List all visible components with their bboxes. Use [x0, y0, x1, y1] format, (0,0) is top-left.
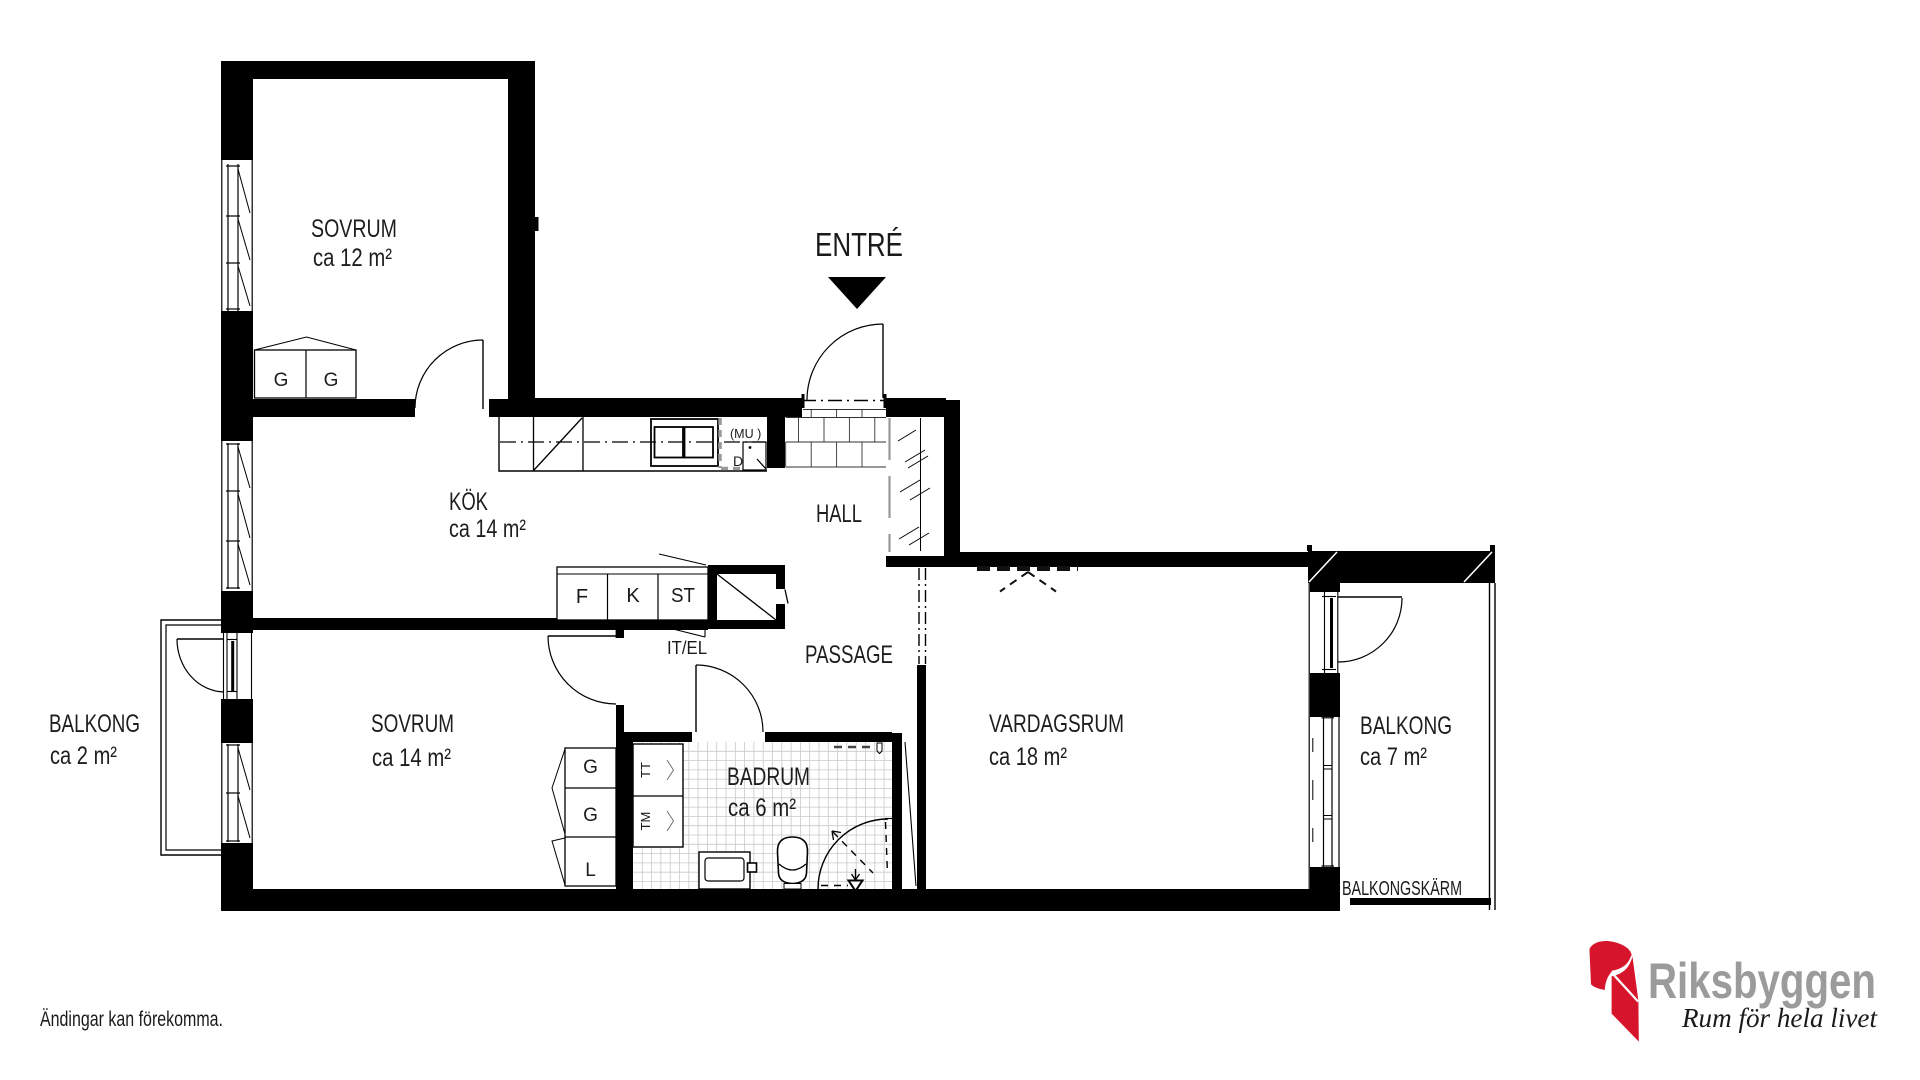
svg-text:Riksbyggen: Riksbyggen: [1648, 953, 1876, 1009]
svg-text:(MU ): (MU ): [730, 427, 761, 441]
svg-text:ca 14 m²: ca 14 m²: [372, 744, 451, 772]
svg-text:IT/EL: IT/EL: [667, 638, 707, 658]
svg-text:ca 14 m²: ca 14 m²: [449, 515, 526, 543]
svg-text:ST: ST: [671, 585, 695, 607]
svg-text:Rum för hela livet: Rum för hela livet: [1681, 1003, 1878, 1033]
svg-text:PASSAGE: PASSAGE: [805, 641, 893, 669]
svg-text:TT: TT: [638, 762, 653, 778]
svg-text:G: G: [274, 370, 289, 391]
svg-text:BADRUM: BADRUM: [727, 763, 810, 791]
svg-text:VARDAGSRUM: VARDAGSRUM: [989, 710, 1124, 738]
svg-text:ca 18 m²: ca 18 m²: [989, 743, 1067, 771]
svg-text:D: D: [733, 453, 743, 469]
svg-text:ca 6 m²: ca 6 m²: [728, 794, 796, 822]
svg-text:ca 2 m²: ca 2 m²: [50, 742, 117, 770]
svg-text:HALL: HALL: [816, 500, 862, 528]
svg-text:G: G: [583, 805, 598, 826]
svg-text:Ändingar kan förekomma.: Ändingar kan förekomma.: [40, 1008, 223, 1031]
svg-text:TM: TM: [638, 812, 653, 831]
svg-text:F: F: [576, 586, 588, 608]
svg-text:SOVRUM: SOVRUM: [371, 710, 454, 738]
svg-text:KÖK: KÖK: [449, 488, 488, 516]
svg-text:ENTRÉ: ENTRÉ: [815, 226, 903, 263]
svg-text:BALKONGSKÄRM: BALKONGSKÄRM: [1342, 878, 1462, 900]
svg-text:BALKONG: BALKONG: [1360, 712, 1452, 740]
svg-text:L: L: [585, 860, 596, 881]
svg-text:ca 12 m²: ca 12 m²: [313, 244, 392, 272]
svg-text:G: G: [583, 757, 598, 778]
svg-text:ca 7 m²: ca 7 m²: [1360, 743, 1427, 771]
svg-text:G: G: [324, 370, 339, 391]
svg-text:K: K: [626, 585, 640, 607]
svg-text:SOVRUM: SOVRUM: [311, 215, 397, 243]
svg-text:BALKONG: BALKONG: [49, 710, 140, 738]
